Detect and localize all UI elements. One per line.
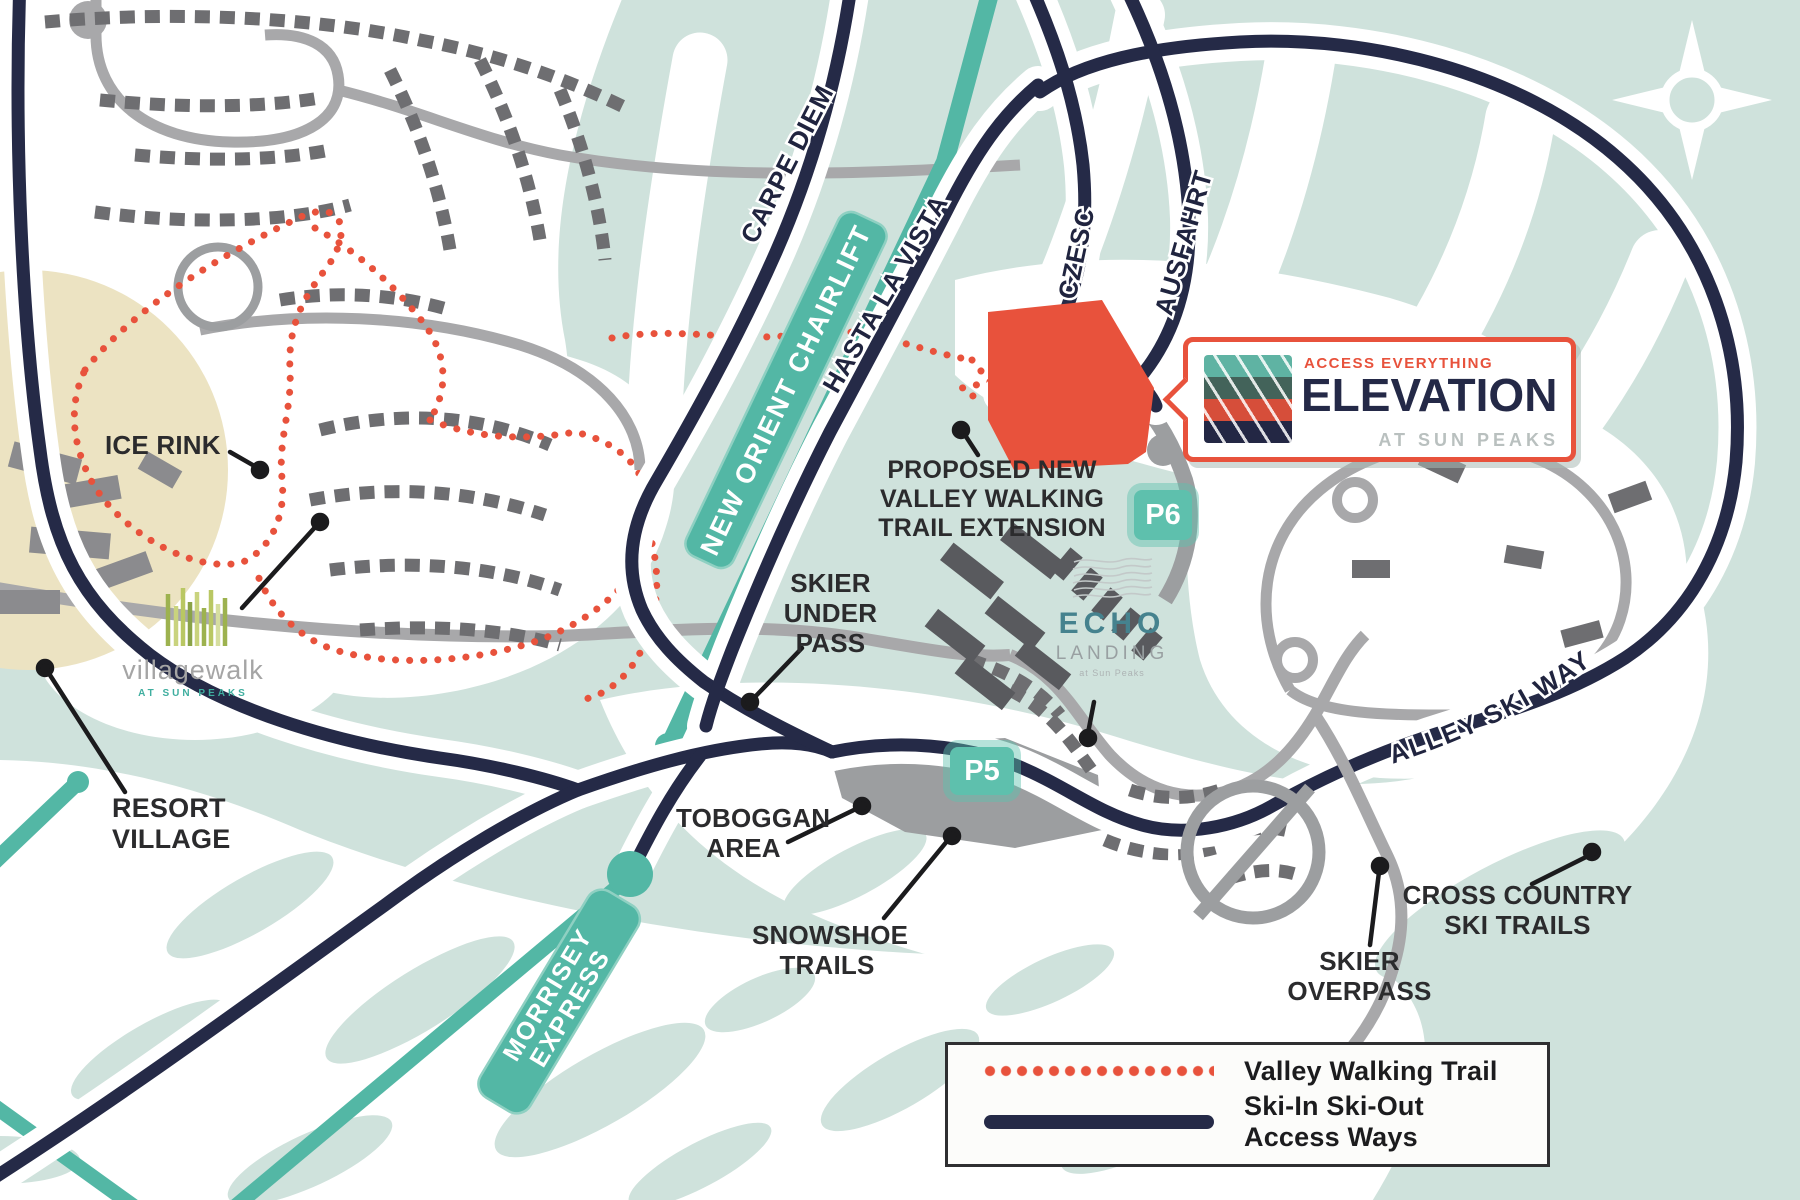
- skier-overpass-label: SKIER OVERPASS: [1272, 946, 1447, 1006]
- parking-badge-p5: P5: [950, 747, 1014, 795]
- elevation-location: AT SUN PEAKS: [1378, 430, 1559, 451]
- villagewalk-location: AT SUN PEAKS: [118, 688, 268, 699]
- resort-village-label: RESORT VILLAGE: [112, 793, 262, 856]
- legend: Valley Walking Trail Ski-In Ski-Out Acce…: [945, 1042, 1550, 1167]
- cross-country-ski-trails-label: CROSS COUNTRY SKI TRAILS: [1390, 880, 1645, 940]
- legend-label: Valley Walking Trail: [1244, 1056, 1498, 1087]
- villagewalk-name: villagewalk: [118, 655, 268, 686]
- elevation-logo-callout: ACCESS EVERYTHING ELEVATION AT SUN PEAKS: [1183, 337, 1576, 462]
- snowshoe-trails-label: SNOWSHOE TRAILS: [752, 920, 902, 980]
- resort-map: NEW ORIENT CHAIRLIFT MORRISEY EXPRESS CA…: [0, 0, 1800, 1200]
- skier-under-pass-label: SKIER UNDER PASS: [768, 568, 893, 658]
- ski-in-ski-out-swatch: [984, 1115, 1214, 1129]
- valley-walking-trail-swatch: [984, 1065, 1214, 1077]
- toboggan-area-label: TOBOGGAN AREA: [676, 803, 811, 863]
- echo-name2: LANDING: [1050, 643, 1174, 665]
- villagewalk-logo: villagewalk AT SUN PEAKS: [118, 576, 268, 699]
- echo-location: at Sun Peaks: [1050, 668, 1174, 678]
- elevation-logo-icon: [1204, 355, 1292, 443]
- villagewalk-trees-icon: [138, 576, 248, 650]
- elevation-name: ELEVATION: [1301, 372, 1557, 418]
- echo-name: ECHO: [1050, 607, 1174, 641]
- echo-waves-icon: [1070, 556, 1154, 600]
- map-canvas: NEW ORIENT CHAIRLIFT MORRISEY EXPRESS CA…: [0, 0, 1800, 1200]
- proposed-trail-label: PROPOSED NEW VALLEY WALKING TRAIL EXTENS…: [872, 456, 1112, 543]
- morrisey-bullwheel: [607, 851, 653, 897]
- legend-item-ski-in-ski-out: Ski-In Ski-Out Access Ways: [984, 1091, 1511, 1153]
- legend-item-valley-walking-trail: Valley Walking Trail: [984, 1056, 1511, 1087]
- legend-label: Ski-In Ski-Out Access Ways: [1244, 1091, 1511, 1153]
- parking-badge-p6: P6: [1134, 490, 1192, 540]
- ice-rink-label: ICE RINK: [105, 430, 221, 460]
- echo-landing-logo: ECHO LANDING at Sun Peaks: [1050, 556, 1174, 678]
